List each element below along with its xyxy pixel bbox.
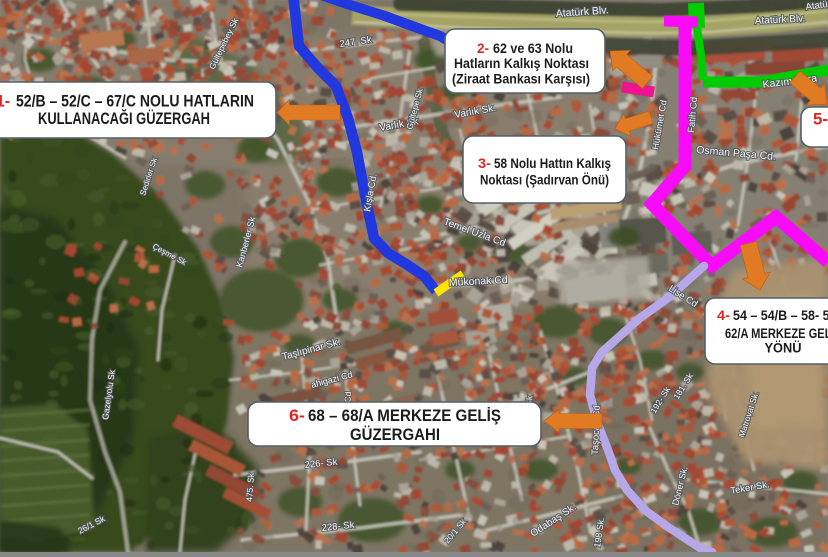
svg-text:2-: 2- bbox=[477, 41, 489, 56]
svg-text:GÜZERGAHI: GÜZERGAHI bbox=[350, 425, 440, 444]
svg-text:Hatların Kalkış Noktası: Hatların Kalkış Noktası bbox=[454, 56, 589, 71]
svg-text:52/B – 52/C – 67/C NOLU HATLAR: 52/B – 52/C – 67/C NOLU HATLARIN bbox=[16, 93, 254, 111]
svg-text:5-: 5- bbox=[813, 111, 828, 129]
svg-text:Noktası (Şadırvan Önü): Noktası (Şadırvan Önü) bbox=[480, 172, 609, 188]
svg-text:58 Nolu Hattın Kalkış: 58 Nolu Hattın Kalkış bbox=[494, 155, 611, 171]
svg-text:3-: 3- bbox=[478, 155, 491, 171]
svg-text:68 – 68/A MERKEZE GELİŞ: 68 – 68/A MERKEZE GELİŞ bbox=[308, 407, 501, 425]
svg-text:54 – 54/B – 58- 58/B: 54 – 54/B – 58- 58/B bbox=[733, 307, 828, 323]
svg-text:6-: 6- bbox=[289, 407, 305, 425]
svg-text:YÖNÜ: YÖNÜ bbox=[765, 340, 802, 356]
svg-text:1-: 1- bbox=[0, 93, 10, 111]
svg-text:Taşocak Cd: Taşocak Cd bbox=[590, 405, 603, 455]
svg-text:475. Sk: 475. Sk bbox=[244, 472, 256, 502]
svg-text:62 ve 63 Nolu: 62 ve 63 Nolu bbox=[493, 41, 573, 56]
svg-text:4-: 4- bbox=[717, 307, 730, 323]
svg-text:KULLANACAĞI GÜZERGAH: KULLANACAĞI GÜZERGAH bbox=[38, 109, 210, 128]
svg-text:(Ziraat Bankası Karşısı): (Ziraat Bankası Karşısı) bbox=[452, 72, 590, 87]
